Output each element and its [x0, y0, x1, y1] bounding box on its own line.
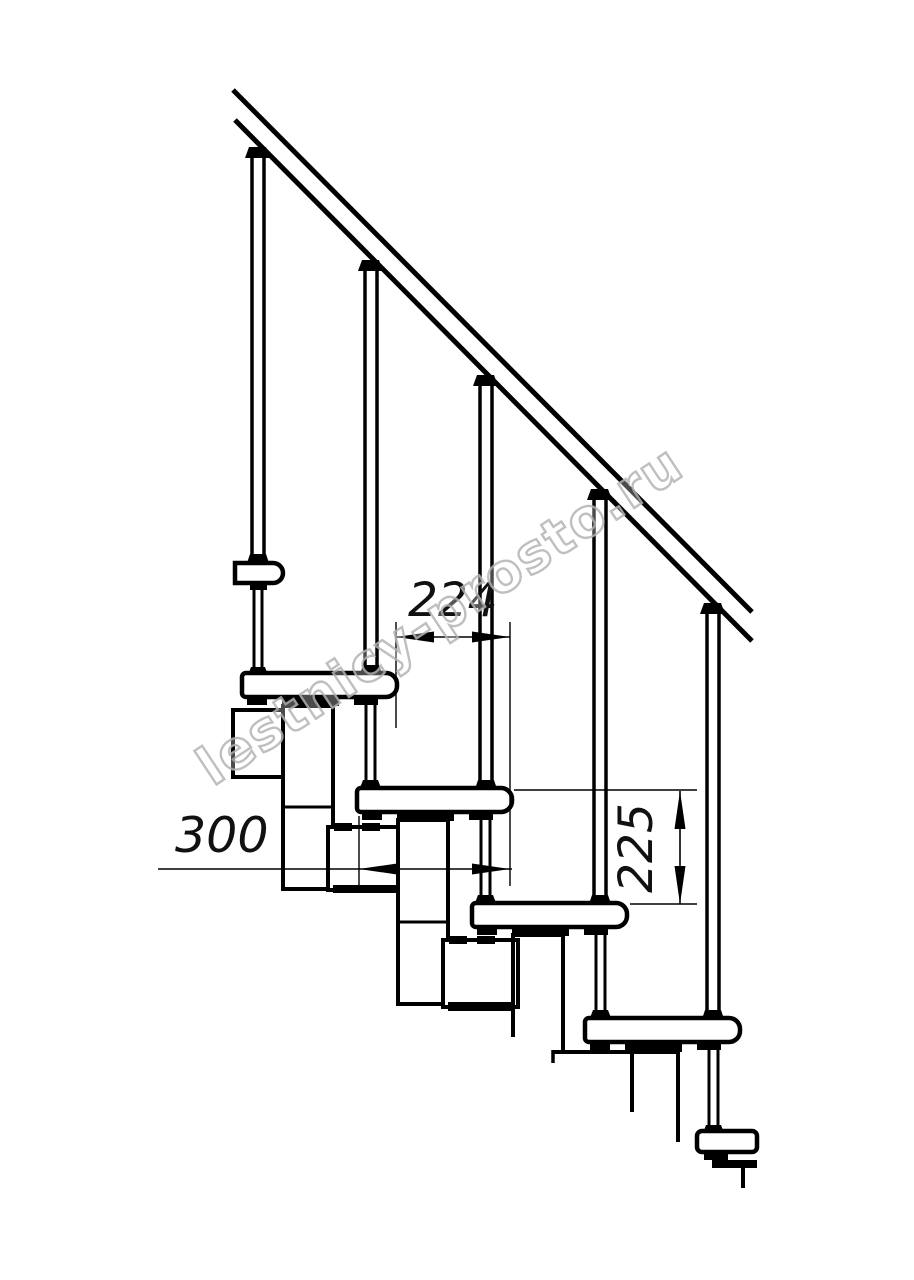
- baluster-5: [700, 603, 725, 1019]
- nose-post-4: [703, 1050, 724, 1133]
- nose-post-2: [475, 820, 496, 903]
- rail-connector-icon: [473, 375, 498, 386]
- spine-module-3-cut: [513, 935, 563, 1050]
- dimension-label-300: 300: [175, 807, 269, 864]
- rail-connector-icon: [700, 603, 725, 614]
- dimension-label-225: 225: [609, 803, 664, 893]
- nose-post-1: [360, 705, 381, 788]
- tread-0-nose: [235, 563, 283, 583]
- baluster-1: [245, 147, 270, 563]
- rail-connector-icon: [245, 147, 270, 158]
- staircase-drawing: 224 300 225 lestnicy-prosto.ru: [0, 0, 914, 1280]
- arrow-down-icon: [675, 866, 686, 904]
- tread-5-cut: [697, 1131, 757, 1188]
- rail-connector-icon: [358, 260, 383, 271]
- baluster-2: [358, 260, 383, 674]
- arrow-up-icon: [675, 791, 686, 829]
- staircase-drawing-canvas: 224 300 225 lestnicy-prosto.ru: [0, 0, 914, 1280]
- nose-post-3: [590, 935, 611, 1018]
- tread-2: [357, 788, 512, 821]
- nose-post-0: [248, 583, 268, 675]
- tread-3: [472, 903, 627, 936]
- spine-module-4-cut: [553, 1050, 678, 1142]
- tread-4: [585, 1018, 740, 1052]
